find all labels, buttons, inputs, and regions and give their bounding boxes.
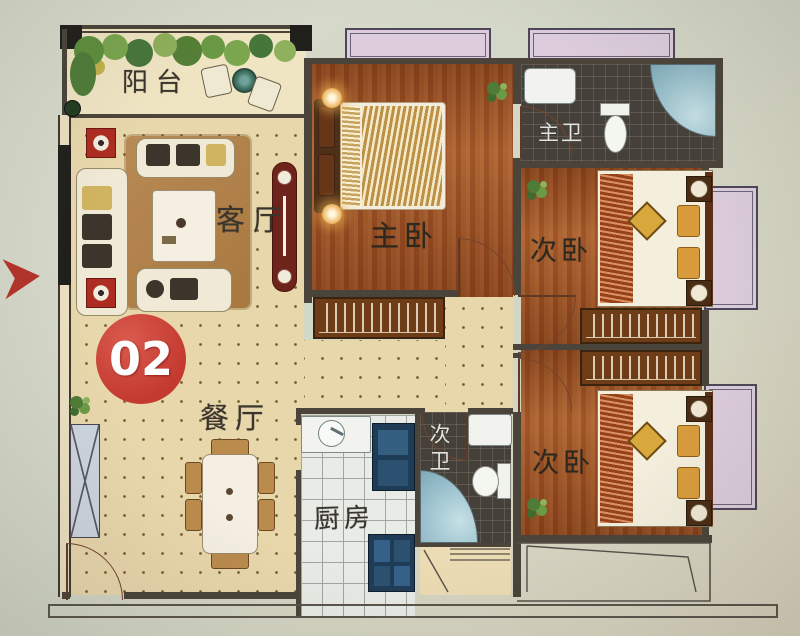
master-bath-sink	[524, 68, 576, 104]
second-bath-sink	[468, 414, 512, 446]
coffee-table-tray	[162, 236, 176, 244]
balcony-living-divider	[62, 114, 310, 118]
kitchen-counter-lower-door-2	[394, 540, 410, 562]
master-bath-toilet-bowl	[604, 115, 627, 153]
spine-wall-1	[513, 58, 521, 104]
tv-cabinet-knob-bottom	[277, 269, 292, 284]
master-bottom-wall	[304, 290, 460, 297]
direction-arrow-icon	[3, 257, 42, 299]
side-table-top	[86, 128, 116, 158]
floor-plan-scene: 02	[0, 0, 800, 636]
bath-niche-divider	[415, 543, 511, 547]
nightstand-top	[690, 284, 708, 302]
dining-chair-left-2	[185, 499, 202, 531]
second-bath-toilet-tank	[497, 463, 511, 499]
second-bathroom-label: 次卫	[424, 423, 454, 477]
bedroom-lower-nightstand-2	[686, 500, 712, 526]
plant-bedroom-lower	[527, 498, 540, 511]
side-table-bottom	[86, 278, 116, 308]
bedroom-upper-wardrobe	[580, 308, 702, 344]
plant-master-bedroom	[487, 82, 500, 95]
balcony-pot-plant	[64, 100, 81, 117]
living-master-wall	[304, 58, 312, 303]
master-lamp-top	[322, 88, 342, 108]
spine-wall-2	[513, 158, 521, 295]
corridor-floor-a	[304, 340, 445, 412]
bedroom-lower-pillow-2	[677, 467, 700, 499]
bedroom-upper-label: 次卧	[530, 238, 592, 265]
sofa-left-cushion-2	[82, 244, 112, 268]
dining-table	[202, 454, 258, 554]
sofa-left-pillow-gold	[82, 186, 112, 210]
bedroom-upper-pillow-1	[677, 205, 700, 237]
kitchen-label: 厨房	[314, 505, 375, 533]
balcony-label: 阳台	[122, 70, 190, 96]
plant-living	[70, 396, 83, 409]
utility-niche-floor	[420, 543, 511, 595]
window-top-bath	[528, 28, 675, 62]
master-lamp-bottom	[322, 204, 342, 224]
dining-chair-left-1	[185, 462, 202, 494]
tv-cabinet-knob-top	[277, 170, 292, 185]
plant-bedroom-upper	[527, 180, 540, 193]
kitchen-counter-upper-door-1	[378, 430, 408, 455]
dining-room-label: 餐厅	[200, 404, 270, 433]
side-table-lamp	[93, 285, 109, 301]
window-inner-line	[350, 33, 486, 57]
master-bathroom-label: 主卫	[538, 117, 584, 147]
window-inner-line	[709, 389, 752, 505]
master-bed-pillow-1	[318, 106, 335, 148]
living-room-label: 客厅	[216, 206, 290, 235]
right-wall-upper	[716, 58, 723, 168]
outer-platform-line	[48, 604, 778, 618]
master-bed-pillow-2	[318, 154, 335, 196]
dining-chair-bottom	[211, 552, 249, 569]
dining-table-bowl-2	[226, 514, 233, 521]
sofa-bottom-cushion-round	[146, 280, 164, 298]
bedroom-lower-nightstand-1	[686, 396, 712, 422]
bedroom-upper-blanket	[600, 174, 633, 303]
duct-shaft	[70, 424, 100, 538]
wardrobe-hangers	[586, 356, 696, 380]
bedroom-lower-pillow-1	[677, 425, 700, 457]
bedroom-upper-nightstand-1	[686, 176, 712, 202]
sofa-left-cushion-1	[82, 214, 112, 240]
master-wardrobe	[313, 297, 445, 339]
bottom-wall-left	[124, 592, 301, 599]
nightstand-top	[690, 400, 708, 418]
second-bath-toilet-bowl	[472, 466, 499, 497]
kitchen-counter-lower-door-3	[374, 566, 390, 586]
master-bedroom-label: 主卧	[370, 222, 438, 251]
corridor-floor-b	[445, 290, 513, 412]
dining-table-bowl-1	[226, 488, 233, 495]
kitchen-counter-lower-door-1	[374, 540, 390, 562]
dining-chair-right-1	[258, 462, 275, 494]
wardrobe-hangers	[319, 303, 439, 333]
bedroom-lower-bottom-wall	[513, 535, 712, 543]
bedroom-lower-blanket	[600, 394, 633, 523]
corridor-bottom-wall-a	[296, 408, 425, 414]
bedroom-upper-nightstand-2	[686, 280, 712, 306]
nightstand-top	[690, 180, 708, 198]
master-bed-duvet	[362, 106, 442, 206]
coffee-table-teapot	[176, 218, 186, 228]
unit-number: 02	[109, 332, 173, 386]
dining-chair-right-2	[258, 499, 275, 531]
sofa-top-cushion-2	[176, 144, 200, 166]
nightstand-top	[690, 504, 708, 522]
balcony-plant-drape	[70, 52, 96, 96]
wardrobe-hangers	[586, 314, 696, 338]
spine-wall-4	[513, 412, 521, 597]
bedroom-lower-label: 次卧	[532, 450, 594, 477]
side-table-lamp	[93, 135, 109, 151]
master-bed-runner	[342, 106, 360, 206]
balcony-top-wall	[62, 25, 310, 29]
window-inner-line	[533, 33, 670, 57]
kitchen-counter-lower-door-4	[394, 566, 410, 586]
sofa-top-pillow-gold	[206, 144, 226, 166]
bath-bottom-wall	[513, 162, 722, 168]
bedroom-upper-pillow-2	[677, 247, 700, 279]
sofa-bottom-cushion-2	[170, 278, 198, 300]
bedroom-lower-wardrobe	[580, 350, 702, 386]
window-inner-line	[709, 191, 753, 305]
left-wall-black-segment	[58, 145, 71, 285]
kitchen-counter-upper-door-2	[378, 460, 408, 486]
unit-number-badge: 02	[96, 314, 186, 404]
window-top-master	[345, 28, 491, 62]
sofa-top-cushion-1	[146, 144, 170, 166]
